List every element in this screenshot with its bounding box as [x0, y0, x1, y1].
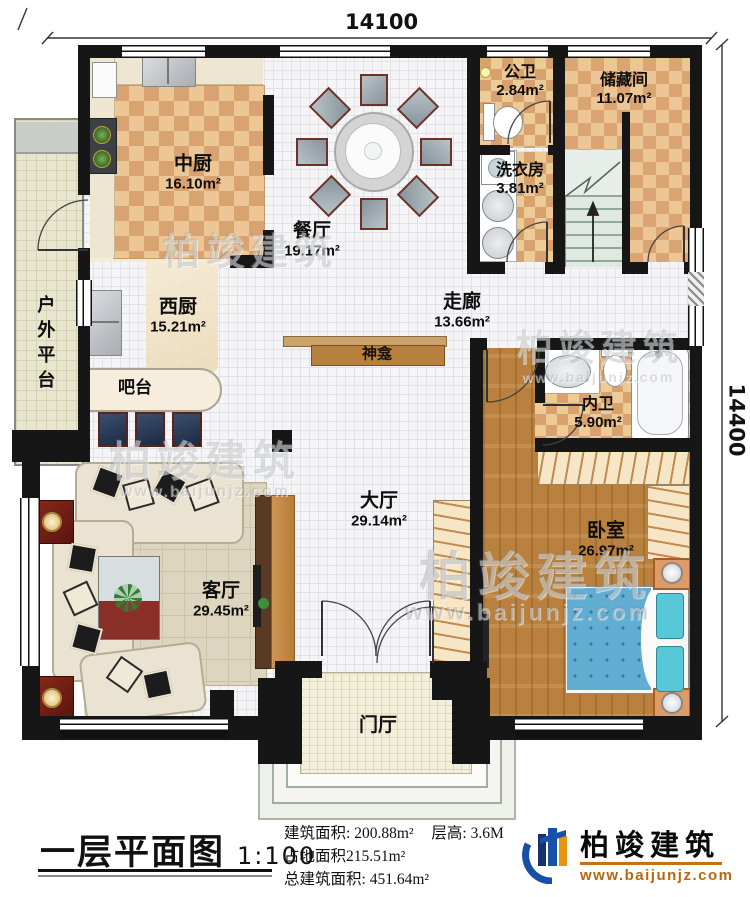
window	[76, 280, 92, 326]
wall	[210, 690, 234, 718]
window	[688, 228, 704, 272]
bed-duvet	[567, 588, 651, 690]
label-shrine: 神龛	[362, 345, 392, 362]
title-underline	[38, 875, 272, 877]
dining-chair	[360, 198, 388, 230]
laundry-basin	[482, 227, 514, 259]
logo-icon	[522, 824, 574, 884]
plan-title: 一层平面图1:100	[40, 824, 316, 875]
wall	[553, 45, 565, 274]
wall	[263, 95, 274, 175]
sofa-pillow	[67, 543, 98, 574]
nightstand-lamp	[661, 692, 683, 714]
window	[568, 45, 650, 58]
window	[280, 45, 390, 58]
room-label-canting: 餐厅 19.17m²	[284, 220, 340, 259]
table-lamp	[42, 512, 62, 532]
wardrobe-top	[537, 450, 690, 485]
bathtub-inner	[637, 351, 683, 435]
west-kitchen-sink	[88, 290, 122, 356]
wall	[480, 145, 510, 155]
platform-top-band	[16, 122, 78, 154]
fridge	[92, 62, 117, 98]
window	[515, 718, 643, 738]
window	[688, 306, 704, 346]
wall	[470, 338, 483, 668]
wall-vent-hatch	[688, 272, 704, 306]
west-kitchen-sink-divider	[89, 321, 119, 323]
closet-hall	[433, 500, 473, 667]
staircase	[565, 195, 623, 267]
bed-pillow	[656, 593, 684, 639]
room-label-gongwei: 公卫 2.84m²	[496, 64, 544, 100]
window	[122, 45, 205, 58]
room-label-neiwei: 内卫 5.90m²	[574, 396, 622, 432]
wall	[78, 248, 90, 270]
title-underline	[38, 869, 272, 872]
wall	[22, 664, 40, 718]
room-label-chucang: 储藏间 11.07m²	[596, 72, 651, 108]
toilet-bowl	[493, 106, 523, 139]
nightstand-lamp	[661, 562, 683, 584]
wall	[535, 438, 690, 452]
sofa-pillow	[141, 668, 173, 700]
room-label-woshi: 卧室 26.97m²	[578, 520, 634, 559]
room-label-xichu: 西厨 15.21m²	[150, 296, 206, 335]
wall	[470, 338, 487, 350]
bed-pillow	[656, 646, 684, 692]
logo-url: www.baijunjz.com	[580, 867, 733, 884]
stove-burner	[93, 126, 111, 144]
tv-screen	[253, 565, 261, 627]
floor-outdoor-platform	[14, 118, 84, 466]
wall	[22, 462, 40, 502]
room-label-dating: 大厅 29.14m²	[351, 490, 407, 529]
window	[487, 45, 548, 58]
window	[60, 718, 228, 738]
dining-chair	[420, 138, 452, 166]
bar-stool	[98, 412, 128, 447]
label-outdoor-platform: 户外平台	[35, 295, 56, 395]
label-bar: 吧台	[118, 378, 152, 398]
wall	[258, 678, 302, 764]
wc-light	[480, 67, 491, 78]
bath-sink	[545, 355, 591, 388]
kitchen-sink-divider	[167, 58, 169, 84]
wall	[537, 338, 702, 350]
wardrobe-right	[647, 485, 690, 560]
dining-chair	[360, 74, 388, 106]
room-label-menting: 门厅	[359, 715, 397, 737]
wall	[467, 45, 480, 274]
dimension-right: 14400	[725, 383, 749, 456]
stove-burner	[93, 150, 111, 168]
wall	[12, 430, 90, 462]
wall	[78, 45, 90, 195]
wall	[622, 112, 630, 267]
bar-stool	[135, 412, 165, 447]
console-plant	[258, 598, 269, 609]
window	[20, 498, 40, 666]
kitchen-sink	[142, 57, 196, 87]
floorplan-canvas: 14100 14400 中厨 16.10m² 餐厅 19.17m² 公卫 2.8…	[0, 0, 750, 897]
bathtub-faucet	[655, 350, 663, 358]
room-label-zhongchu: 中厨 16.10m²	[165, 153, 221, 192]
wall	[230, 255, 274, 268]
area-info: 建筑面积: 200.88m² 层高: 3.6M 占地面积215.51m² 总建筑…	[284, 822, 504, 891]
wall	[690, 45, 702, 725]
table-lamp	[42, 688, 62, 708]
bar-stool	[172, 412, 202, 447]
tv-console-shelf	[271, 495, 295, 669]
dimension-top: 14100	[345, 10, 418, 34]
area-line-1: 建筑面积: 200.88m² 层高: 3.6M	[284, 822, 504, 845]
room-label-zoulang: 走廊 13.66m²	[434, 291, 490, 330]
plant	[114, 584, 142, 612]
room-label-keting: 客厅 29.45m²	[193, 580, 249, 619]
bar-counter	[88, 368, 222, 412]
structural-column	[272, 430, 292, 452]
area-line-3: 总建筑面积: 451.64m²	[284, 868, 504, 891]
bath-toilet-bowl	[603, 355, 627, 387]
logo-name: 柏竣建筑	[580, 822, 720, 864]
wall	[432, 665, 485, 700]
room-label-xiyi: 洗衣房 3.81m²	[496, 162, 544, 198]
staircase-upper	[565, 150, 622, 195]
wall	[275, 661, 322, 678]
dining-chair	[296, 138, 328, 166]
area-line-2: 占地面积215.51m²	[284, 845, 504, 868]
logo-underline	[580, 862, 722, 865]
wall	[545, 262, 553, 274]
wall	[535, 350, 545, 403]
dining-table-center	[364, 142, 382, 160]
company-logo: 柏竣建筑 www.baijunjz.com	[522, 822, 722, 892]
